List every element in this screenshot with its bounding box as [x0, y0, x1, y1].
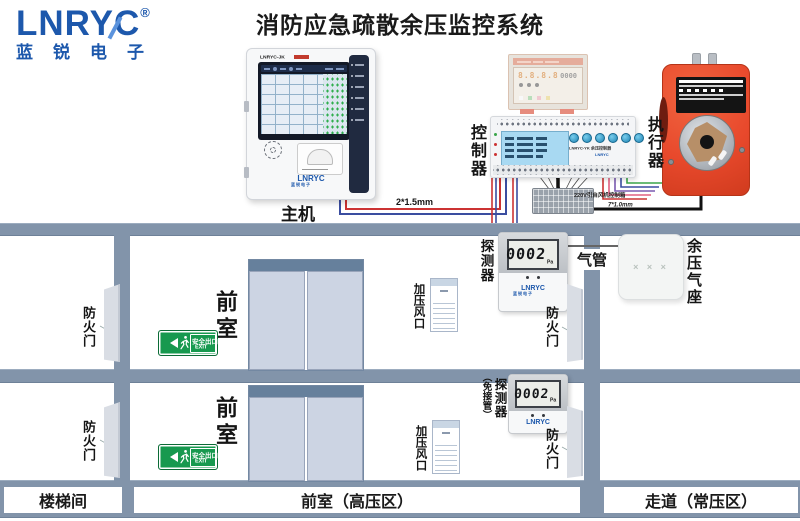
elevator-door — [307, 397, 363, 481]
fire-door-row1-left — [104, 284, 120, 362]
pressure-vent-row2 — [432, 420, 460, 474]
registered-mark-icon: ® — [140, 5, 151, 20]
elevator-row2 — [248, 385, 364, 482]
air-seat-label: 余压气座 — [686, 238, 701, 306]
screw-icon — [739, 147, 745, 153]
controller-brand: LNRYC — [595, 153, 622, 161]
host-screen-dot-matrix — [323, 74, 347, 134]
mount-clip — [520, 109, 534, 114]
elevator-header — [249, 386, 363, 397]
detector-unit: Pa — [547, 260, 553, 266]
actuator-label-panel — [676, 77, 746, 113]
controller-display-panel: 8.8.8.80000 — [513, 67, 583, 104]
mount-clip — [560, 109, 574, 114]
controller-display-unit: 8.8.8.80000 — [508, 54, 586, 116]
exit-arrow-icon — [173, 341, 178, 345]
host-indicator-panel — [349, 55, 369, 193]
host-screen-toolbar — [261, 65, 347, 72]
detector-row1: 0002 Pa LNRYC 蓝锐电子 — [498, 232, 568, 312]
host-model-red-tag — [294, 55, 309, 59]
fire-door-row2-right — [567, 406, 583, 478]
host-brand: LNRYC 蓝锐电子 — [247, 175, 375, 191]
host-screen-table — [261, 74, 323, 134]
detector-label-row2: 探测器 — [493, 378, 506, 419]
tube-label: 气管 — [576, 249, 608, 270]
host-label: 主机 — [276, 200, 320, 225]
vent-label-row1: 加压风口 — [412, 283, 424, 329]
fire-door-row1-right — [567, 284, 583, 362]
legend-corridor-np: 走道（常压区） — [604, 487, 798, 513]
vent-label-row2: 加压风口 — [414, 425, 426, 471]
diagram-canvas: LNRYC® 蓝锐电子 消防应急疏散余压监控系统 — [0, 0, 800, 521]
anteroom-label-row2: 前室 — [214, 396, 236, 450]
controller-device: LNRYC-YK 余压控制器 LNRYC — [490, 116, 636, 178]
terminal-row-top — [497, 119, 629, 127]
detector-lcd: 0002 Pa — [515, 380, 561, 408]
host-cable-label: 2*1.5mm — [396, 197, 433, 207]
power-note-label: 220V引自风机控制箱 — [574, 191, 625, 199]
detector-reading: 0002 — [513, 388, 549, 401]
logo-text: LNRYC® — [16, 6, 164, 41]
company-logo: LNRYC® 蓝锐电子 — [16, 6, 164, 61]
detector-label-row1: 探测器 — [479, 239, 493, 283]
fire-door-row2-left — [104, 402, 120, 478]
running-man-icon — [179, 335, 190, 355]
controller-display-header — [513, 58, 583, 65]
host-device: LNRYC-JK LNRYC 蓝锐电子 — [246, 48, 376, 200]
printer-slot — [297, 143, 343, 175]
fire-door-label-row1-left: 防火门 — [82, 306, 95, 348]
page-title: 消防应急疏散余压监控系统 — [256, 6, 544, 40]
exit-text-block: 安全出口 EXIT — [190, 334, 216, 353]
legend-stairwell: 楼梯间 — [4, 487, 122, 513]
air-seat-device: × × × — [618, 234, 684, 300]
controller-leds — [494, 133, 497, 156]
fire-door-label-row2-left: 防火门 — [82, 420, 95, 462]
speaker-icon — [264, 141, 282, 159]
elevator-row1 — [248, 259, 364, 371]
running-man-icon — [179, 449, 190, 469]
elevator-door — [307, 271, 363, 370]
actuator-device — [662, 64, 750, 196]
screw-icon — [668, 159, 674, 165]
detector-unit: Pa — [550, 398, 556, 404]
elevator-door — [249, 397, 305, 481]
elevator-door — [249, 271, 305, 370]
pressure-vent-row1 — [430, 278, 458, 332]
terminal-row-bottom — [493, 165, 633, 175]
hinge-icon — [244, 101, 249, 112]
detector-lcd: 0002 Pa — [507, 239, 559, 270]
actuator-label: 执行器 — [645, 116, 661, 170]
exit-arrow-icon — [173, 455, 178, 459]
host-screen — [258, 62, 350, 140]
legend-anteroom-hp: 前室（高压区） — [134, 487, 580, 513]
detector-row2: 0002 Pa LNRYC — [508, 374, 568, 434]
host-model: LNRYC-JK — [260, 54, 285, 60]
actuator-mechanism — [679, 115, 735, 171]
elevator-header — [249, 260, 363, 271]
fire-door-label-row1-right: 防火门 — [545, 306, 558, 348]
detector-note-row2: （免接管） — [481, 372, 491, 420]
controller-buttons — [569, 133, 644, 143]
controller-label: 控制器 — [468, 124, 484, 178]
detector-reading: 0002 — [506, 247, 547, 262]
exit-sign-row1: 安全出口 EXIT — [158, 330, 218, 356]
fire-door-label-row2-right: 防火门 — [545, 428, 558, 470]
logo-subtitle: 蓝锐电子 — [16, 44, 164, 61]
controller-model: LNRYC-YK 余压控制器 — [569, 145, 611, 151]
exit-text-block: 安全出口 EXIT — [190, 448, 216, 467]
actuator-cable-label: 7*1.0mm — [608, 201, 633, 208]
exit-sign-row2: 安全出口 EXIT — [158, 444, 218, 470]
